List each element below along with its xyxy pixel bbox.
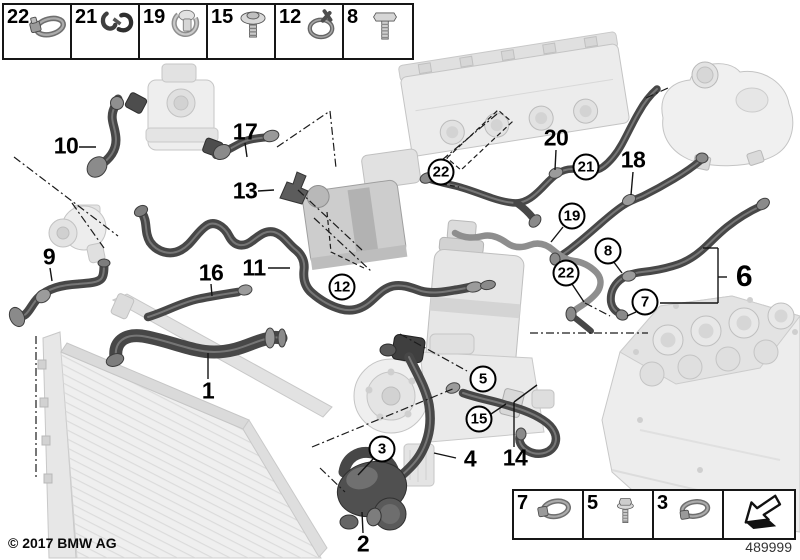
callout-22-circled-bottom[interactable]: 22 [553,260,580,287]
radiator [38,293,332,558]
legend-number: 3 [657,492,668,514]
direction-arrow-icon [727,492,793,530]
legend-box-21[interactable]: 21 [72,5,140,58]
callout-2[interactable]: 2 [357,531,369,558]
spring-clip-icon [97,6,137,42]
diagram-canvas [0,0,800,560]
cylinder-head [398,31,630,156]
callout-14[interactable]: 14 [503,445,528,472]
hose-20-branch [517,203,533,218]
legend-bottom-row: 7 5 3 [512,489,796,540]
callout-8-circled[interactable]: 8 [595,238,622,265]
washer-screw-icon [233,6,273,44]
spring-band-clamp-icon [301,6,341,44]
legend-number: 8 [347,6,358,28]
legend-box-7[interactable]: 7 [514,491,584,538]
callout-16[interactable]: 16 [199,260,224,287]
legend-number: 22 [7,6,29,28]
legend-number: 12 [279,6,301,28]
callout-12-circled[interactable]: 12 [329,274,356,301]
legend-number: 5 [587,492,598,514]
bracket-part13 [280,172,308,204]
callout-20[interactable]: 20 [544,125,569,152]
callout-17[interactable]: 17 [233,119,258,146]
callout-6[interactable]: 6 [736,260,752,294]
legend-box-8[interactable]: 8 [344,5,412,58]
retaining-clip-icon [165,6,205,44]
legend-number: 21 [75,6,97,28]
legend-top-row: 22 21 19 15 [2,3,414,60]
copyright-text: © 2017 BMW AG [8,535,117,551]
hex-bolt-icon [358,6,411,46]
callout-19-circled[interactable]: 19 [559,203,586,230]
legend-box-5[interactable]: 5 [584,491,654,538]
legend-number: 15 [211,6,233,28]
flange-bolt-icon [598,492,651,530]
electric-coolant-pump [49,205,106,263]
legend-box-arrow[interactable] [724,491,794,538]
callout-5-circled[interactable]: 5 [470,366,497,393]
diagram-number: 489999 [700,539,792,555]
callout-11[interactable]: 11 [242,255,265,282]
legend-box-12[interactable]: 12 [276,5,344,58]
callout-18[interactable]: 18 [621,147,646,174]
hose-clamp-icon [29,6,69,44]
callout-1[interactable]: 1 [202,378,214,405]
callout-21-circled[interactable]: 21 [573,154,600,181]
legend-box-3[interactable]: 3 [654,491,724,538]
callout-7-circled[interactable]: 7 [632,289,659,316]
aux-valve-unit [124,64,224,158]
callout-10[interactable]: 10 [54,133,79,160]
legend-box-19[interactable]: 19 [140,5,208,58]
callout-4[interactable]: 4 [464,446,476,473]
callout-13[interactable]: 13 [233,178,258,205]
legend-box-15[interactable]: 15 [208,5,276,58]
legend-number: 19 [143,6,165,28]
legend-box-22[interactable]: 22 [4,5,72,58]
callout-3-circled[interactable]: 3 [369,436,396,463]
expansion-tank [662,62,793,171]
hose-clamp-icon [668,492,721,526]
parts-diagram-page: 10 17 13 9 16 11 1 2 4 14 20 18 6 12 22 … [0,0,800,560]
callout-9[interactable]: 9 [43,244,55,271]
callout-15-circled[interactable]: 15 [466,406,493,433]
callout-22-circled-top[interactable]: 22 [428,159,455,186]
hose-clamp-icon [528,492,581,526]
legend-number: 7 [517,492,528,514]
